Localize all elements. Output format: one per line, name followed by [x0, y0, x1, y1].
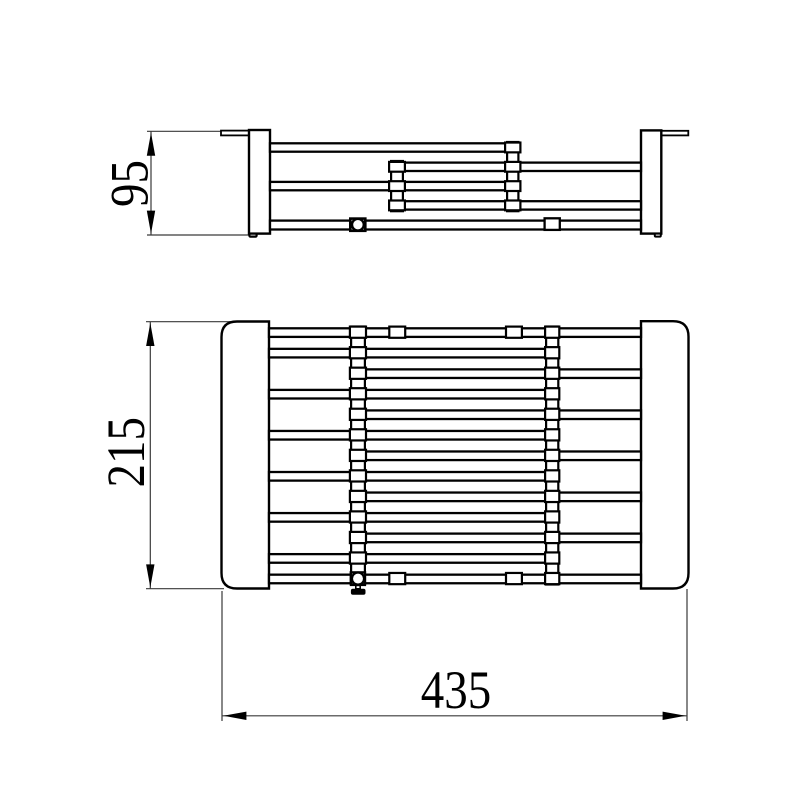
svg-text:95: 95	[99, 160, 159, 207]
svg-text:215: 215	[96, 417, 156, 487]
svg-text:435: 435	[421, 660, 491, 720]
